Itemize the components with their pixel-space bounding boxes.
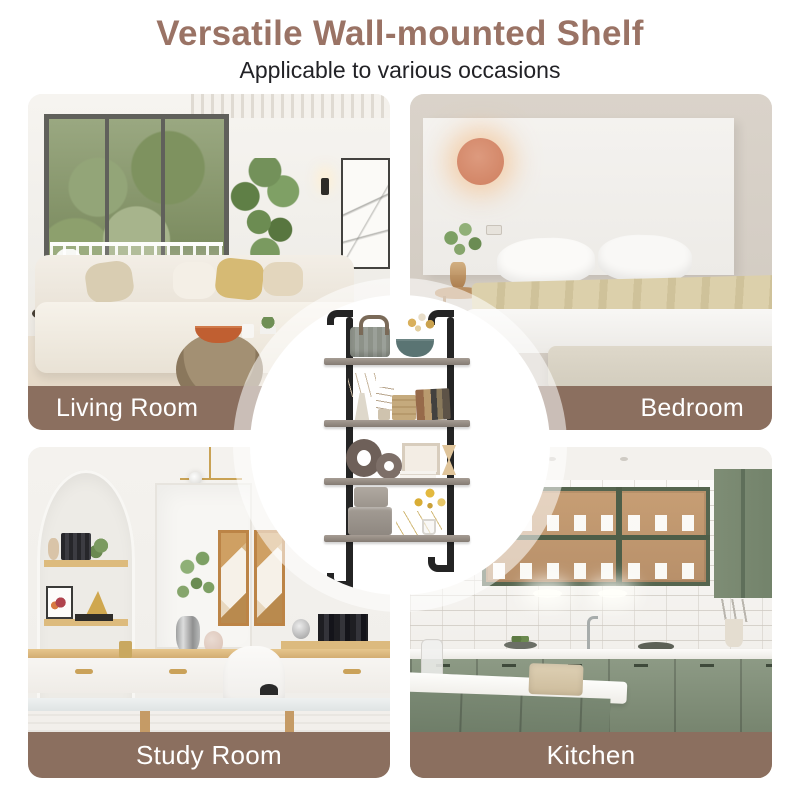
white-book-stack xyxy=(400,471,436,478)
cabinet-handles xyxy=(410,664,772,667)
book-stack xyxy=(75,614,113,621)
study-room-label-bar: Study Room xyxy=(28,732,390,778)
pipe-bottom-hook-right xyxy=(428,557,454,572)
cup xyxy=(242,324,255,337)
bookends-books xyxy=(318,614,369,640)
book-row xyxy=(415,388,451,421)
pillow-right xyxy=(597,233,693,283)
gold-pencil-cup xyxy=(119,641,132,658)
page-title: Versatile Wall-mounted Shelf xyxy=(0,14,800,54)
sink-faucet xyxy=(587,616,598,649)
cabinet-seam xyxy=(741,469,745,598)
bread-box xyxy=(529,663,584,696)
desk-drawers xyxy=(28,658,390,693)
round-wall-lamp xyxy=(457,138,504,185)
under-shelf-light xyxy=(598,589,627,597)
desk-wood-top xyxy=(28,649,390,658)
pipe-bottom-hook-left xyxy=(327,573,353,588)
desk-lamp xyxy=(260,684,278,696)
shelf-board-3 xyxy=(324,478,470,485)
tan-vase xyxy=(48,538,60,560)
storage-box-large xyxy=(348,507,392,535)
glass-cup xyxy=(422,519,436,535)
white-countertop xyxy=(410,649,772,659)
brass-drawer-handle xyxy=(343,669,361,675)
black-books xyxy=(61,533,92,559)
page-subtitle: Applicable to various occasions xyxy=(0,57,800,84)
paper-stack xyxy=(392,395,416,420)
shelf-pipe-right xyxy=(447,317,454,569)
wood-shelf xyxy=(44,560,127,567)
utensil-crock xyxy=(725,619,743,647)
product-infographic: Versatile Wall-mounted Shelf Applicable … xyxy=(0,0,800,800)
green-fruit xyxy=(511,636,529,643)
storage-box-small xyxy=(354,487,388,507)
pillow-tan xyxy=(263,262,303,296)
donut-vase-small xyxy=(376,453,402,479)
glass-desk-surface xyxy=(28,698,390,711)
kitchen-label: Kitchen xyxy=(547,740,636,771)
framed-botanical-print xyxy=(46,586,73,619)
cream-vase xyxy=(354,393,370,420)
bed-end-bench xyxy=(548,346,772,390)
gold-sprigs xyxy=(400,313,440,341)
study-room-label: Study Room xyxy=(136,740,282,771)
shelf-plant xyxy=(91,536,111,559)
bedroom-label: Bedroom xyxy=(640,394,744,423)
pendant-rod xyxy=(209,447,211,480)
pillow-white xyxy=(173,262,216,299)
glass-vase xyxy=(450,262,466,289)
small-plant xyxy=(260,317,276,334)
brass-drawer-handle xyxy=(169,669,187,675)
diffuser-bottle xyxy=(378,409,390,420)
product-circle xyxy=(250,295,550,595)
shelf-board-1 xyxy=(324,358,470,365)
wall-art xyxy=(341,158,390,269)
geometric-wall-art-right xyxy=(254,530,285,626)
wall-sconce xyxy=(321,178,329,195)
woven-basket xyxy=(350,327,390,357)
shelf-board-2 xyxy=(324,420,470,427)
teal-bowl xyxy=(396,339,434,357)
white-dishes-row xyxy=(493,563,699,580)
under-shelf-light xyxy=(533,589,562,597)
living-room-label: Living Room xyxy=(56,394,198,423)
kitchen-label-bar: Kitchen xyxy=(410,732,772,778)
pillow-gold xyxy=(214,256,265,301)
shelf-board-4 xyxy=(324,535,470,542)
brass-drawer-handle xyxy=(75,669,93,675)
desk-plant xyxy=(166,546,228,629)
